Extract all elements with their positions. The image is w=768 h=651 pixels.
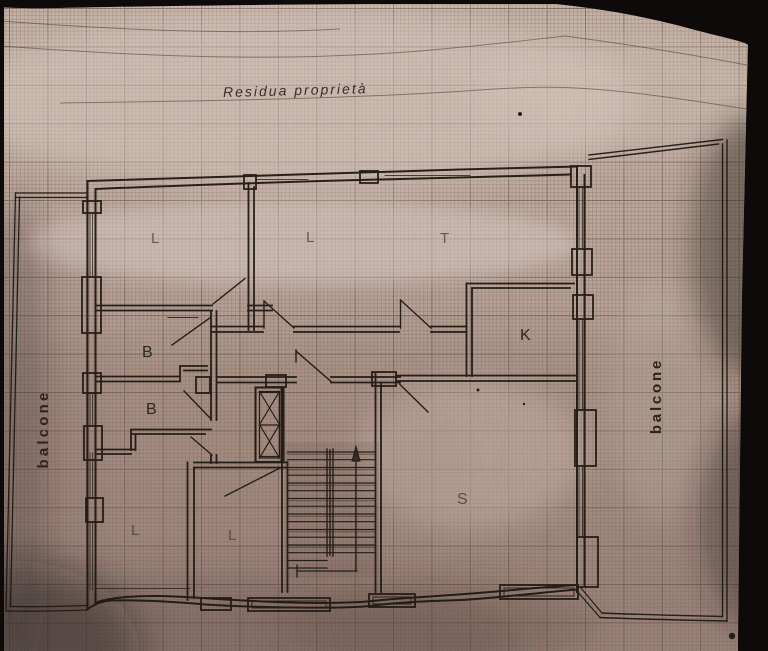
svg-text:L: L — [306, 229, 314, 246]
svg-text:balcone: balcone — [35, 389, 52, 468]
svg-text:T: T — [440, 230, 449, 247]
svg-text:B: B — [146, 401, 157, 418]
svg-text:L: L — [228, 527, 236, 544]
svg-text:balcone: balcone — [648, 358, 665, 434]
svg-text:K: K — [520, 327, 531, 344]
svg-text:B: B — [142, 344, 153, 361]
svg-text:L: L — [151, 230, 159, 247]
svg-text:S: S — [457, 491, 468, 508]
svg-text:L: L — [131, 522, 139, 539]
